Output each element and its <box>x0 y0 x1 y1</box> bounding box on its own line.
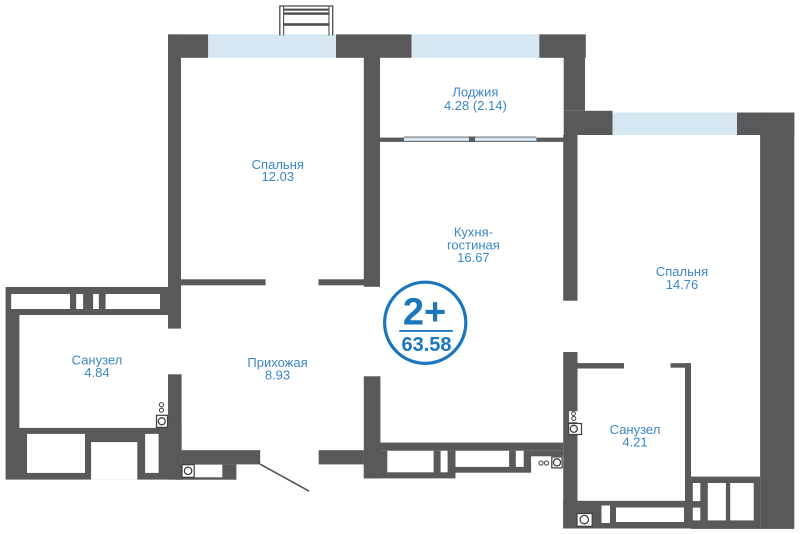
svg-text:16.67: 16.67 <box>457 250 490 265</box>
svg-text:8.93: 8.93 <box>265 368 290 383</box>
svg-text:12.03: 12.03 <box>262 169 295 184</box>
svg-text:14.76: 14.76 <box>666 277 699 292</box>
svg-text:63.58: 63.58 <box>401 334 451 356</box>
svg-text:4.84: 4.84 <box>84 365 109 380</box>
svg-text:4.21: 4.21 <box>622 435 647 450</box>
svg-text:2+: 2+ <box>403 292 446 334</box>
svg-text:4.28 (2.14): 4.28 (2.14) <box>444 98 507 113</box>
